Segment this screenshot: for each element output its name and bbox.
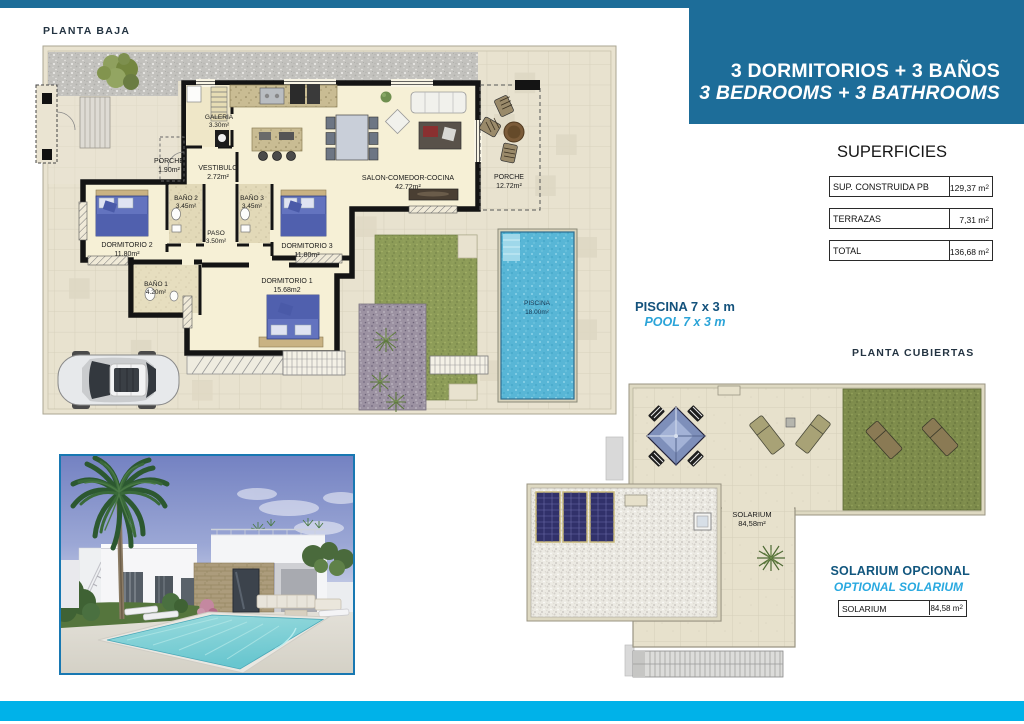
svg-text:DORMITORIO 1: DORMITORIO 1	[261, 278, 312, 285]
svg-text:GALERIA: GALERIA	[205, 114, 234, 121]
svg-text:84,58m²: 84,58m²	[738, 519, 766, 528]
svg-text:1.90m²: 1.90m²	[158, 167, 180, 174]
svg-text:3.45m²: 3.45m²	[176, 203, 197, 210]
svg-text:4.20m²: 4.20m²	[146, 289, 167, 296]
svg-text:BAÑO 3: BAÑO 3	[240, 193, 264, 202]
svg-text:PASO: PASO	[207, 230, 225, 237]
svg-text:3.45m²: 3.45m²	[242, 203, 263, 210]
svg-text:PORCHE: PORCHE	[494, 174, 524, 181]
svg-text:DORMITORIO 2: DORMITORIO 2	[101, 242, 152, 249]
svg-text:2.72m²: 2.72m²	[207, 174, 229, 181]
svg-text:SOLARIUM: SOLARIUM	[732, 510, 771, 519]
svg-text:42.72m²: 42.72m²	[395, 184, 421, 191]
svg-text:PORCHE: PORCHE	[154, 158, 184, 165]
svg-text:12.72m²: 12.72m²	[496, 183, 522, 190]
svg-text:11.80m²: 11.80m²	[114, 251, 140, 258]
svg-text:PISCINA: PISCINA	[524, 300, 551, 307]
svg-text:11.80m²: 11.80m²	[294, 252, 320, 259]
svg-text:3.30m²: 3.30m²	[209, 122, 230, 129]
svg-text:3.50m²: 3.50m²	[206, 238, 227, 245]
svg-text:BAÑO 2: BAÑO 2	[174, 193, 198, 202]
svg-text:DORMITORIO 3: DORMITORIO 3	[281, 243, 332, 250]
svg-text:BAÑO 1: BAÑO 1	[144, 279, 168, 288]
svg-text:15.68m2: 15.68m2	[273, 287, 300, 294]
svg-text:SALON-COMEDOR-COCINA: SALON-COMEDOR-COCINA	[362, 175, 455, 182]
svg-text:VESTIBULO: VESTIBULO	[198, 165, 238, 172]
svg-text:18.00m²: 18.00m²	[525, 309, 550, 316]
